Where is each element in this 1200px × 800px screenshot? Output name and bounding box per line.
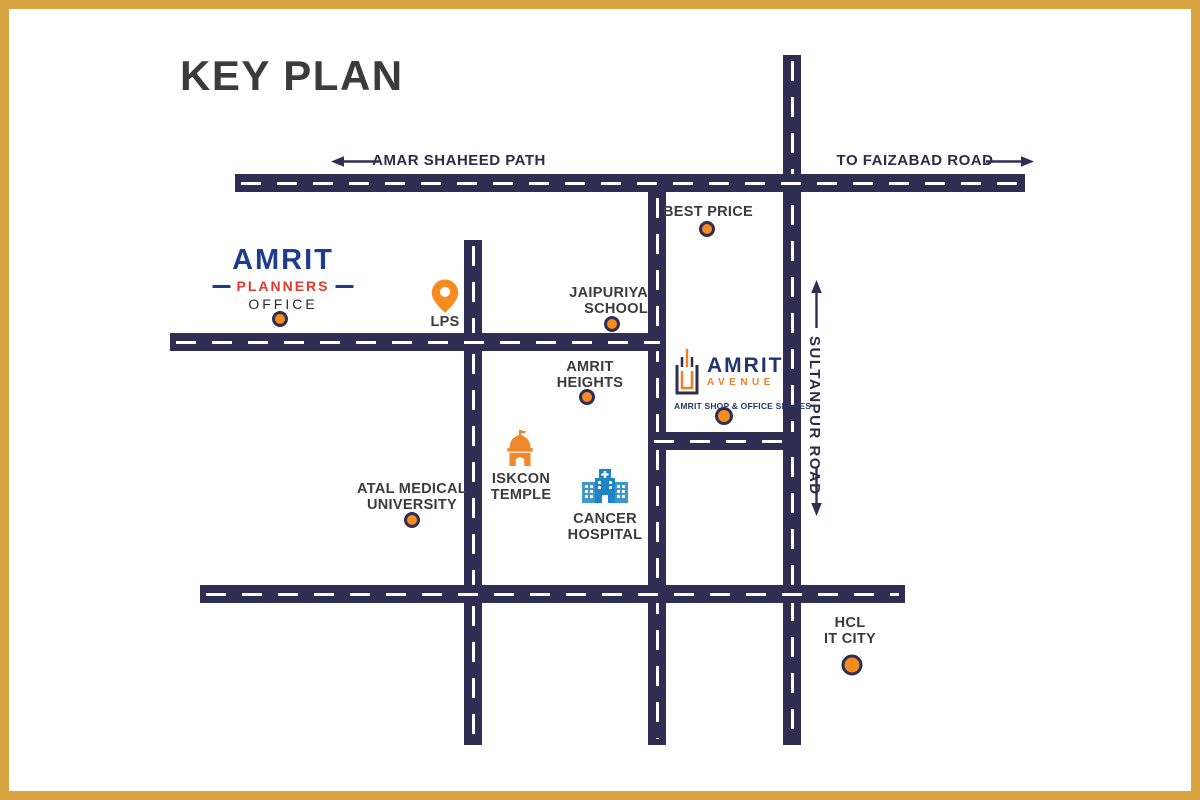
- poi-label-lps: LPS: [430, 314, 459, 330]
- jaipuriya-line2: SCHOOL: [569, 301, 648, 317]
- arrow-down-icon: [810, 468, 823, 516]
- hcl-it-city-dot: [842, 655, 863, 676]
- hcl-line1: HCL: [824, 615, 876, 631]
- road-connector-short: [648, 432, 801, 450]
- amrit-heights-dot: [579, 389, 595, 405]
- hcl-line2: IT CITY: [824, 631, 876, 647]
- logo-dash-right: [336, 285, 354, 288]
- road-label-to-faizabad-road: TO FAIZABAD ROAD: [837, 152, 994, 169]
- lps-pin-icon: [432, 280, 459, 313]
- cancer-line2: HOSPITAL: [568, 527, 643, 543]
- poi-label-amrit-heights: AMRIT HEIGHTS: [557, 359, 624, 391]
- gold-border-frame: [0, 0, 1200, 800]
- amrit-planners-sub-text: PLANNERS: [236, 278, 329, 294]
- amrit-avenue-building-icon: [674, 345, 700, 397]
- poi-label-jaipuriya-school: JAIPURIYA SCHOOL: [569, 285, 648, 317]
- amrit-heights-line1: AMRIT: [557, 359, 624, 375]
- page-title: KEY PLAN: [180, 52, 404, 100]
- jaipuriya-school-dot: [604, 316, 620, 332]
- poi-label-hcl-it-city: HCL IT CITY: [824, 615, 876, 647]
- atal-medical-university-dot: [404, 512, 420, 528]
- arrow-up-icon: [810, 280, 823, 328]
- amrit-planners-logo: AMRIT PLANNERS OFFICE: [212, 246, 353, 312]
- iskcon-line1: ISKCON: [491, 471, 552, 487]
- road-amar-shaheed-path: [235, 174, 1025, 192]
- poi-label-cancer-hospital: CANCER HOSPITAL: [568, 511, 643, 543]
- jaipuriya-line1: JAIPURIYA: [569, 285, 648, 301]
- arrow-right-icon: [986, 155, 1034, 168]
- road-vertical-middle: [648, 192, 666, 745]
- iskcon-line2: TEMPLE: [491, 487, 552, 503]
- poi-label-best-price: BEST PRICE: [663, 204, 753, 220]
- poi-label-iskcon-temple: ISKCON TEMPLE: [491, 471, 552, 503]
- poi-label-atal-medical-university: ATAL MEDICAL UNIVERSITY: [357, 481, 467, 513]
- amrit-avenue-logo: AMRIT AVENUE AMRIT SHOP & OFFICE SPACES: [674, 345, 786, 411]
- road-label-amar-shaheed-path: AMAR SHAHEED PATH: [372, 152, 546, 169]
- logo-dash-left: [212, 285, 230, 288]
- cancer-hospital-icon: [582, 469, 628, 509]
- amrit-planners-subtitle: PLANNERS: [212, 278, 353, 294]
- amrit-avenue-dot: [715, 407, 733, 425]
- atal-line1: ATAL MEDICAL: [357, 481, 467, 497]
- amrit-planners-office-label: OFFICE: [212, 296, 353, 312]
- amrit-planners-office-dot: [272, 311, 288, 327]
- amrit-planners-name: AMRIT: [212, 246, 353, 275]
- amrit-avenue-name: AMRIT: [707, 355, 784, 376]
- iskcon-temple-icon: [501, 430, 539, 466]
- road-horizontal-bottom: [200, 585, 905, 603]
- road-horizontal-middle: [170, 333, 666, 351]
- best-price-dot: [699, 221, 715, 237]
- amrit-avenue-subtitle: AVENUE: [707, 378, 784, 388]
- cancer-line1: CANCER: [568, 511, 643, 527]
